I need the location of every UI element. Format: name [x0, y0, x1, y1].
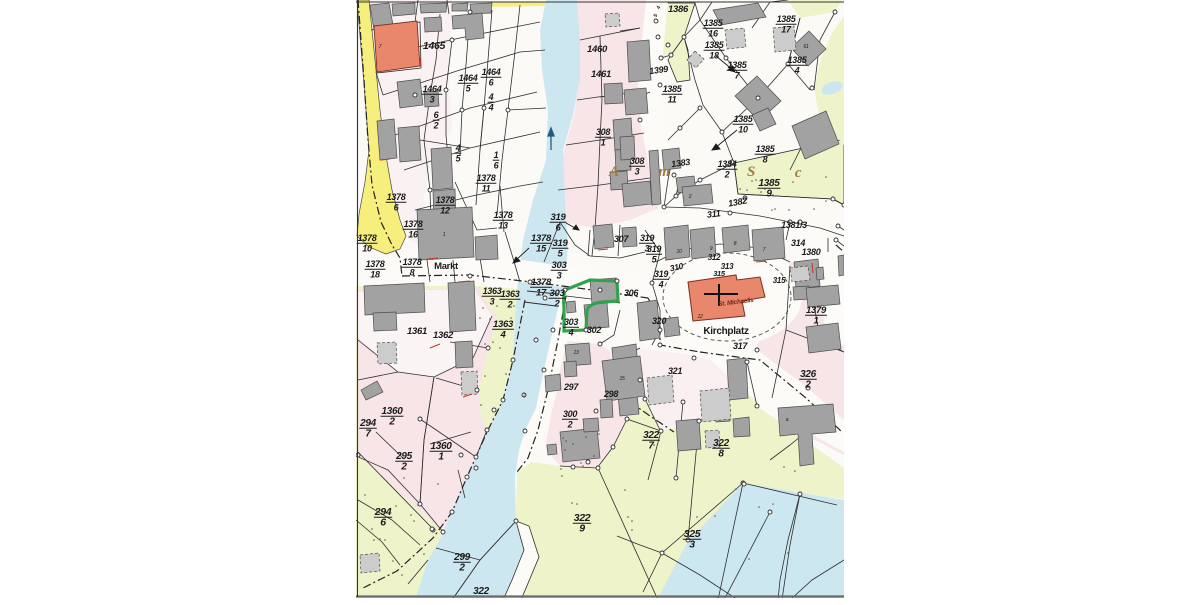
- svg-text:8: 8: [718, 449, 724, 460]
- svg-text:319: 319: [551, 212, 567, 223]
- svg-text:319: 319: [647, 244, 661, 254]
- svg-text:1460: 1460: [587, 44, 608, 55]
- svg-text:1363: 1363: [483, 286, 502, 296]
- svg-text:1378: 1378: [531, 277, 552, 288]
- svg-text:1378: 1378: [358, 233, 377, 243]
- svg-text:6: 6: [380, 517, 386, 529]
- svg-text:1378: 1378: [366, 259, 385, 269]
- svg-text:315: 315: [713, 269, 726, 278]
- svg-text:2: 2: [804, 380, 811, 391]
- svg-text:1: 1: [601, 138, 606, 148]
- svg-text:1378: 1378: [494, 210, 513, 220]
- svg-text:10: 10: [677, 249, 682, 255]
- svg-text:306: 306: [624, 288, 639, 298]
- svg-text:A: A: [608, 164, 619, 180]
- svg-text:c: c: [795, 165, 802, 181]
- svg-text:303: 303: [552, 260, 568, 271]
- svg-text:7: 7: [648, 441, 654, 452]
- svg-text:1464: 1464: [482, 67, 501, 77]
- svg-text:61: 61: [804, 44, 809, 50]
- svg-text:1380: 1380: [802, 247, 821, 257]
- svg-text:315: 315: [773, 276, 786, 285]
- svg-text:319: 319: [553, 238, 569, 249]
- svg-text:4: 4: [488, 92, 494, 102]
- svg-text:4: 4: [568, 328, 574, 338]
- svg-text:1381/3: 1381/3: [781, 220, 807, 230]
- svg-text:1360: 1360: [430, 441, 452, 452]
- svg-text:10: 10: [362, 244, 372, 254]
- svg-text:1378: 1378: [436, 195, 455, 205]
- svg-text:1385: 1385: [788, 55, 808, 65]
- svg-text:322: 322: [643, 430, 660, 441]
- svg-text:13: 13: [574, 350, 579, 356]
- svg-text:319: 319: [640, 233, 654, 243]
- svg-text:1465: 1465: [423, 40, 446, 52]
- svg-text:1378: 1378: [531, 233, 552, 244]
- svg-text:312: 312: [708, 253, 721, 262]
- svg-text:2: 2: [458, 563, 465, 574]
- svg-text:1378: 1378: [387, 192, 406, 202]
- svg-text:319: 319: [654, 269, 668, 279]
- svg-text:Markt: Markt: [434, 261, 459, 272]
- svg-text:320: 320: [652, 316, 666, 326]
- svg-text:308: 308: [630, 156, 644, 166]
- svg-text:1363: 1363: [493, 319, 514, 330]
- svg-text:322: 322: [473, 586, 490, 597]
- svg-text:322: 322: [713, 438, 730, 449]
- svg-text:1461: 1461: [591, 69, 611, 80]
- svg-text:294: 294: [359, 418, 377, 429]
- svg-text:m: m: [658, 164, 669, 180]
- svg-text:18: 18: [370, 270, 380, 280]
- svg-text:2: 2: [507, 300, 513, 310]
- svg-text:1385: 1385: [663, 84, 683, 94]
- svg-text:3: 3: [689, 539, 695, 551]
- svg-text:1464: 1464: [423, 84, 442, 94]
- svg-text:1378: 1378: [404, 219, 423, 229]
- svg-text:1464: 1464: [459, 73, 478, 83]
- svg-text:10: 10: [738, 125, 748, 135]
- svg-text:4: 4: [658, 280, 664, 290]
- svg-text:1385: 1385: [756, 144, 776, 154]
- svg-text:300: 300: [563, 409, 577, 419]
- svg-text:1362: 1362: [433, 330, 454, 341]
- svg-text:1384: 1384: [718, 159, 737, 169]
- svg-text:2: 2: [724, 170, 730, 180]
- svg-text:2: 2: [567, 420, 573, 430]
- svg-text:7: 7: [365, 429, 371, 440]
- svg-text:1: 1: [814, 316, 819, 327]
- svg-text:9: 9: [766, 189, 772, 200]
- svg-text:295: 295: [395, 451, 413, 462]
- svg-text:12: 12: [698, 314, 703, 320]
- svg-text:17: 17: [781, 25, 792, 35]
- svg-text:1385: 1385: [734, 114, 754, 124]
- svg-text:Kirchplatz: Kirchplatz: [703, 326, 749, 337]
- svg-text:317: 317: [733, 341, 748, 351]
- svg-text:8: 8: [410, 268, 415, 278]
- svg-text:2: 2: [388, 417, 395, 428]
- svg-text:1379: 1379: [806, 305, 827, 316]
- svg-text:11: 11: [668, 95, 677, 105]
- svg-text:13: 13: [498, 221, 508, 231]
- svg-text:1378: 1378: [477, 173, 496, 183]
- svg-text:1: 1: [494, 150, 499, 160]
- svg-text:18: 18: [709, 51, 719, 61]
- svg-text:2: 2: [400, 462, 407, 473]
- svg-text:311: 311: [706, 208, 721, 219]
- svg-text:4: 4: [794, 66, 800, 76]
- svg-text:303: 303: [564, 317, 578, 327]
- svg-text:1385: 1385: [758, 178, 780, 189]
- svg-text:15: 15: [620, 376, 625, 382]
- svg-text:1385: 1385: [704, 18, 724, 28]
- svg-text:4: 4: [455, 143, 461, 153]
- svg-text:4: 4: [500, 330, 507, 341]
- svg-text:1378: 1378: [403, 257, 422, 267]
- svg-text:2: 2: [554, 299, 561, 310]
- svg-text:3: 3: [430, 95, 435, 105]
- svg-text:302: 302: [587, 325, 601, 335]
- svg-text:1385: 1385: [777, 14, 797, 24]
- svg-text:1385: 1385: [705, 40, 725, 50]
- svg-text:4: 4: [488, 103, 494, 113]
- svg-text:308: 308: [596, 127, 610, 137]
- svg-text:321: 321: [668, 366, 682, 376]
- svg-text:9: 9: [579, 523, 585, 535]
- svg-text:1386: 1386: [668, 4, 689, 15]
- svg-text:1361: 1361: [407, 326, 427, 337]
- svg-text:326: 326: [800, 369, 817, 380]
- svg-text:1: 1: [438, 452, 444, 463]
- svg-text:16: 16: [408, 230, 419, 240]
- svg-text:2: 2: [688, 194, 692, 200]
- svg-text:11: 11: [482, 184, 491, 194]
- svg-text:2: 2: [433, 121, 439, 131]
- svg-text:298: 298: [603, 389, 618, 399]
- svg-text:1360: 1360: [381, 406, 403, 417]
- svg-text:16: 16: [708, 29, 719, 39]
- svg-text:3: 3: [635, 167, 640, 177]
- svg-text:3: 3: [490, 297, 495, 307]
- svg-text:307: 307: [614, 234, 629, 244]
- svg-text:299: 299: [453, 552, 471, 563]
- svg-text:8: 8: [763, 155, 768, 165]
- svg-text:1363: 1363: [501, 289, 520, 299]
- svg-text:12: 12: [440, 206, 450, 216]
- svg-text:S: S: [747, 164, 755, 180]
- svg-text:15: 15: [536, 244, 547, 255]
- svg-text:297: 297: [563, 382, 579, 392]
